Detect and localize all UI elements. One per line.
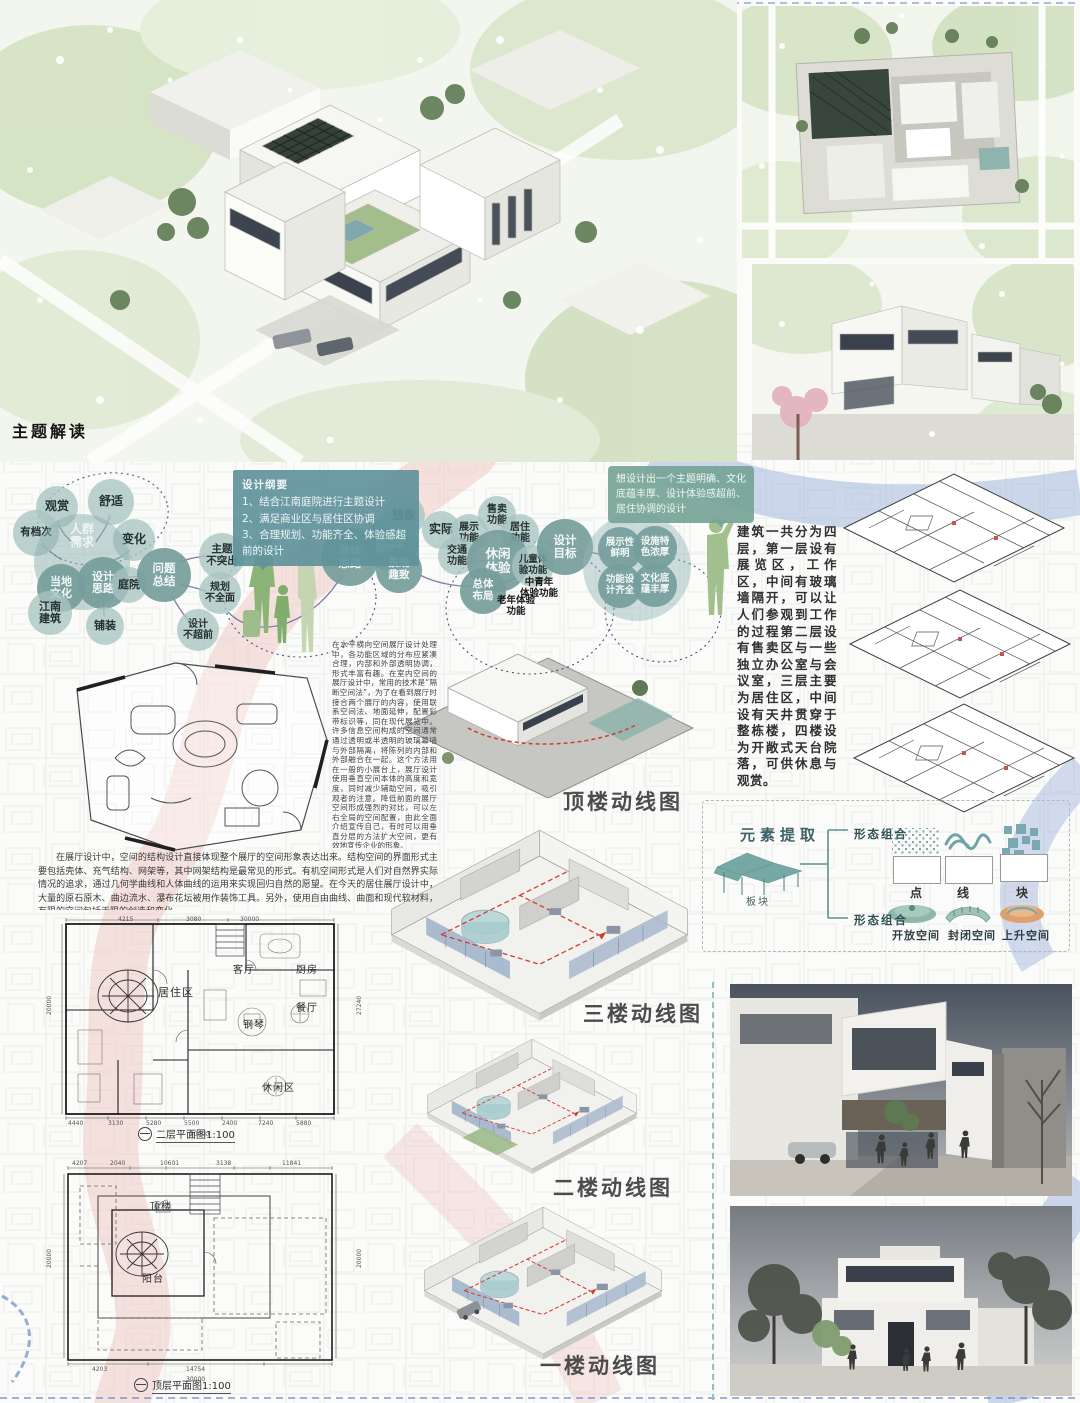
- rising-space-icon: [998, 898, 1046, 926]
- outline-item: 1、结合江南庭院进行主题设计: [242, 494, 410, 510]
- concept-bubble: 文化底 蕴丰厚: [633, 563, 677, 607]
- outline-title: 设计纲要: [242, 477, 410, 493]
- dimension-text: 4203: [92, 1366, 107, 1373]
- space-type-label: 上升空间: [1002, 927, 1050, 943]
- concept-bubble: 江南 建筑: [28, 591, 72, 635]
- first-floor-axon: [378, 1192, 708, 1362]
- outline-item: 3、合理规划、功能齐全、体验感超前的设计: [242, 527, 410, 560]
- room-label: 客厅: [233, 961, 255, 976]
- sketch-box-dot: [893, 856, 941, 884]
- sketch-box-line: [945, 856, 993, 884]
- dimension-text: 20000: [356, 1249, 363, 1268]
- presentation-board: 主题解读: [0, 0, 1080, 1403]
- dimension-text: 11841: [282, 1160, 301, 1167]
- dimension-text: 3138: [216, 1160, 231, 1167]
- concept-bubble: 设计 不超前: [177, 609, 219, 651]
- plan-legend-icon: [134, 1378, 148, 1392]
- concept-bubble: [583, 513, 691, 621]
- combo-label-top: 形态组合: [854, 826, 908, 842]
- goal-speech-bubble: 想设计出一个主题明确、文化底蕴丰厚、设计体验感超前、居住协调的设计: [608, 466, 754, 523]
- block-pattern-swatch: [1000, 822, 1042, 856]
- room-label: 厨房: [296, 961, 318, 976]
- dimension-text: 7240: [258, 1120, 273, 1127]
- circulation-diagram-label: 二楼动线图: [553, 1172, 673, 1202]
- dimension-text: 14754: [186, 1366, 205, 1373]
- dimension-text: 4215: [118, 916, 133, 923]
- exhibition-paragraph-vertical: 在水平横向空间展厅设计处理中，各功能区域的分布应紧凑合理，内部和外部透明协调，形…: [332, 640, 437, 848]
- canopy-icon: [712, 845, 807, 897]
- street-view-render: [730, 984, 1072, 1196]
- second-floor-plan-drawing: [38, 910, 360, 1142]
- siteplan-render-image: [742, 6, 1074, 258]
- dimension-text: 20000: [46, 996, 53, 1015]
- dimension-text: 20000: [46, 1249, 53, 1268]
- room-label: 休闲区: [262, 1079, 295, 1094]
- floorplan-axon-drawings: [826, 466, 1078, 814]
- plan-legend-icon: [138, 1127, 152, 1141]
- section-divider: [712, 982, 714, 1400]
- dimension-text: 2040: [110, 1160, 125, 1167]
- space-type-label: 开放空间: [892, 927, 940, 943]
- dimension-text: 27240: [356, 996, 363, 1015]
- room-label: 钢琴: [243, 1016, 265, 1031]
- concept-bubble: 老年体验 功能: [486, 596, 546, 617]
- second-floor-caption: 二层平面图1:100: [156, 1126, 235, 1143]
- concept-bubble: 问题 总结: [137, 548, 191, 602]
- roof-plan-drawing: [38, 1156, 360, 1384]
- room-label: 顶楼: [150, 1198, 172, 1213]
- circulation-diagram-label: 顶楼动线图: [563, 786, 683, 816]
- circulation-diagram-label: 一楼动线图: [540, 1350, 660, 1380]
- dimension-text: 4440: [68, 1120, 83, 1127]
- combo-label-bottom: 形态组合: [854, 912, 908, 928]
- concept-bubble: 铺装: [86, 607, 124, 645]
- space-type-label: 封闭空间: [948, 927, 996, 943]
- dimension-text: 3130: [108, 1120, 123, 1127]
- second-floor-axon: [362, 1026, 702, 1176]
- room-label: 阳台: [142, 1270, 164, 1285]
- circulation-diagram-label: 三楼动线图: [583, 998, 703, 1028]
- sketch-box-block: [1000, 854, 1048, 882]
- concept-bubble: 规划 不全面: [199, 572, 241, 614]
- front-view-render: [730, 1206, 1072, 1396]
- primitive-label: 点: [910, 884, 922, 901]
- dimension-text: 10601: [160, 1160, 179, 1167]
- design-outline-box: 设计纲要 1、结合江南庭院进行主题设计2、满足商业区与居住区协调3、合理规划、功…: [233, 470, 419, 566]
- dimension-text: 30000: [240, 916, 259, 923]
- perspective-render-image: [752, 264, 1074, 460]
- primitive-label: 线: [957, 884, 969, 901]
- canopy-label: 板块: [746, 893, 770, 908]
- elements-title: 元素提取: [740, 824, 820, 845]
- room-label: 居住区: [158, 984, 194, 1000]
- section-title-theme: 主题解读: [12, 418, 88, 442]
- main-render-image: [0, 0, 737, 462]
- outline-item: 2、满足商业区与居住区协调: [242, 511, 410, 527]
- primitive-label: 块: [1016, 884, 1028, 901]
- building-description: 建筑一共分为四层，第一层设有展览区，工作区，中间有玻璃墙隔开，可以让人们参观到工…: [737, 524, 837, 806]
- room-label: 餐厅: [296, 999, 318, 1014]
- roof-plan-caption: 顶层平面图1:100: [152, 1377, 231, 1394]
- dimension-text: 3080: [186, 916, 201, 923]
- structure-paragraph: 在展厅设计中，空间的结构设计直接体现整个展厅的空间形象表达出来。结构空间的界面形…: [38, 852, 438, 910]
- dimension-text: 4207: [72, 1160, 87, 1167]
- dimension-text: 5880: [296, 1120, 311, 1127]
- exhibition-plan-sketch: [55, 648, 340, 858]
- wave-pattern-swatch: [944, 828, 992, 854]
